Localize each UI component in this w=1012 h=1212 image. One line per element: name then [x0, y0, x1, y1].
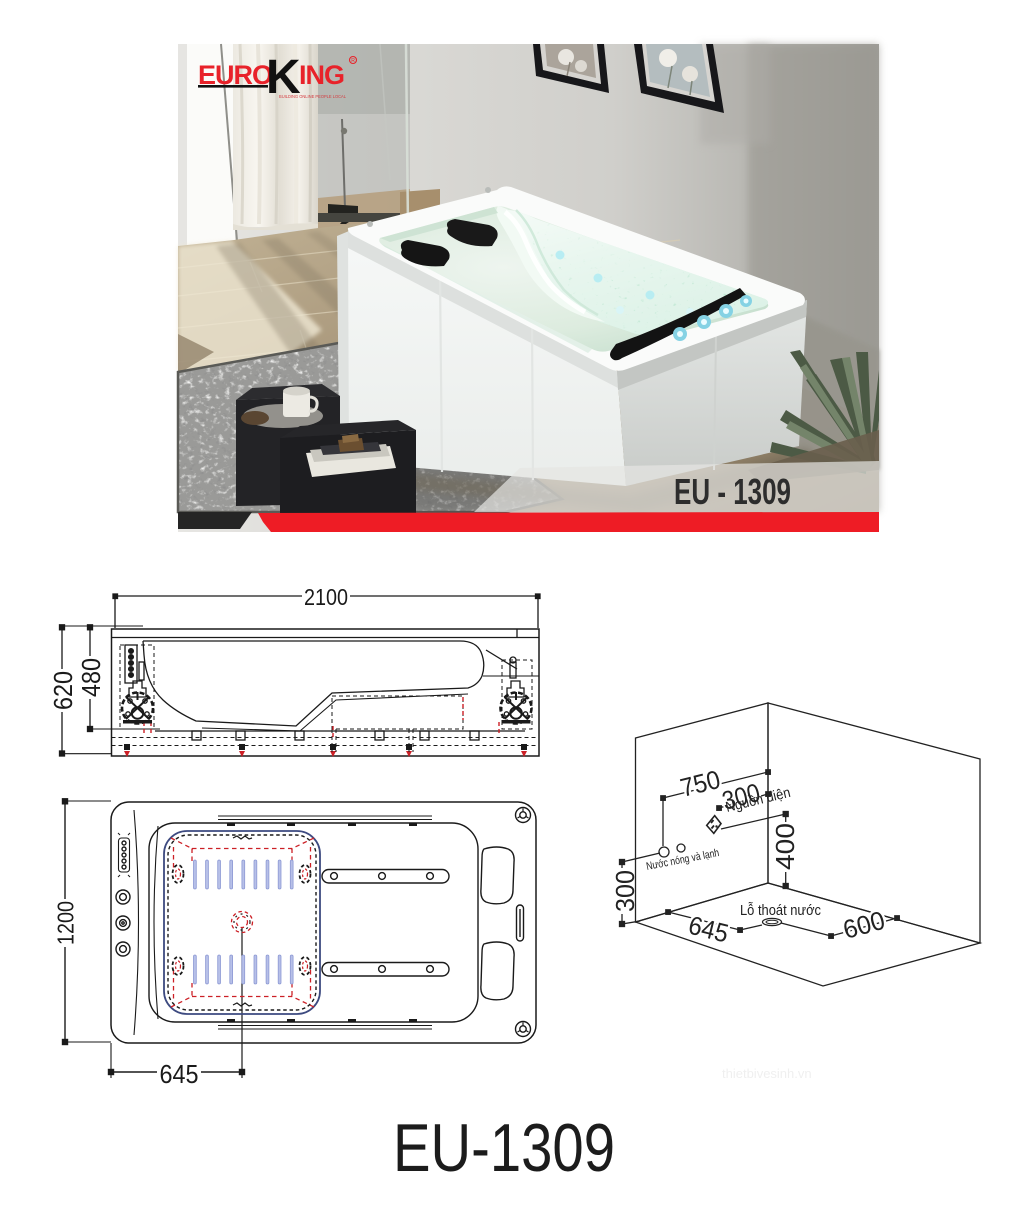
svg-text:645: 645 [160, 1059, 199, 1089]
svg-text:ING: ING [299, 60, 344, 90]
svg-text:400: 400 [770, 823, 800, 870]
svg-text:2100: 2100 [304, 584, 348, 610]
svg-text:645: 645 [686, 910, 732, 949]
svg-text:EU-1309: EU-1309 [393, 1110, 615, 1186]
svg-text:750: 750 [677, 764, 723, 803]
svg-text:Lỗ thoát nước: Lỗ thoát nước [740, 902, 821, 919]
svg-text:300: 300 [610, 870, 640, 912]
svg-text:620: 620 [48, 671, 78, 710]
svg-text:BUILDING ONLINE PEOPLE LOCA: BUILDING ONLINE PEOPLE LOCAL [279, 94, 346, 99]
svg-text:EU - 1309: EU - 1309 [674, 471, 791, 512]
svg-text:480: 480 [76, 658, 106, 697]
svg-text:R: R [351, 58, 355, 64]
svg-text:600: 600 [840, 905, 888, 945]
svg-text:1200: 1200 [53, 901, 79, 945]
svg-text:thietbivesinh.vn: thietbivesinh.vn [722, 1066, 812, 1081]
